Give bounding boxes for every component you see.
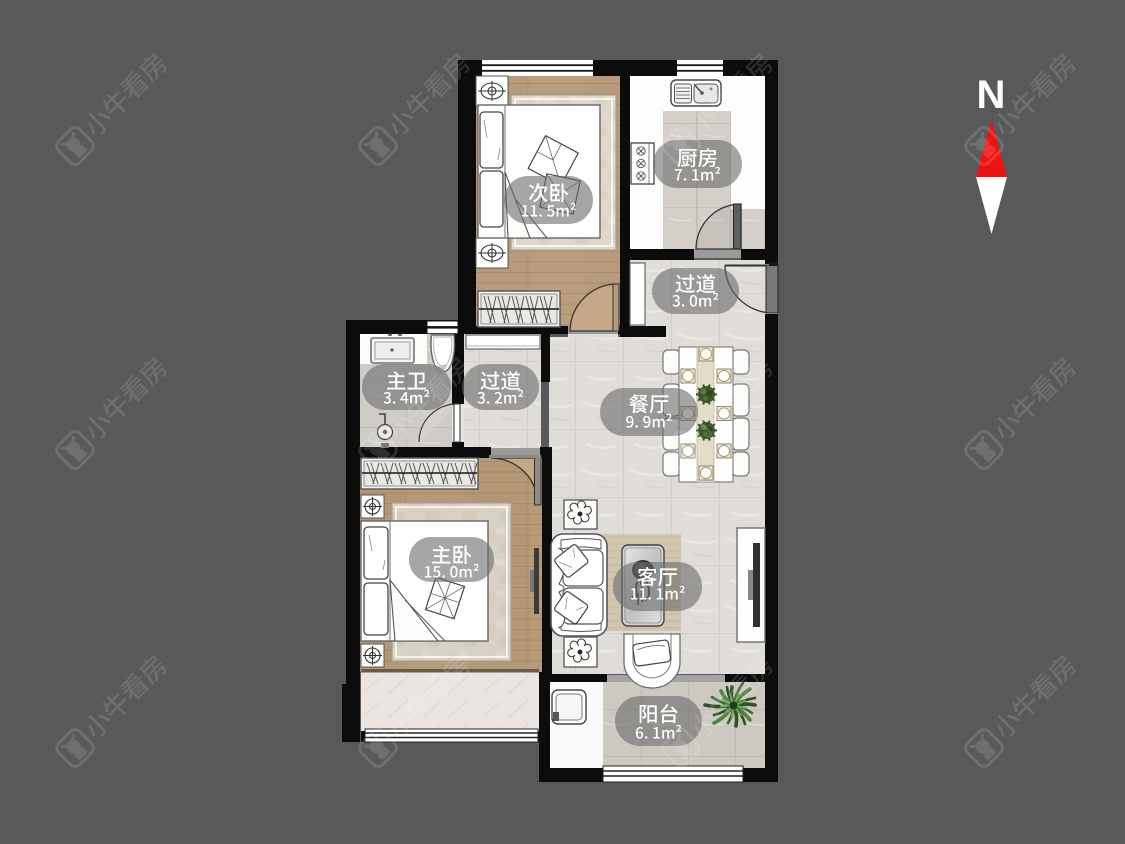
svg-text:N: N [977, 73, 1006, 117]
